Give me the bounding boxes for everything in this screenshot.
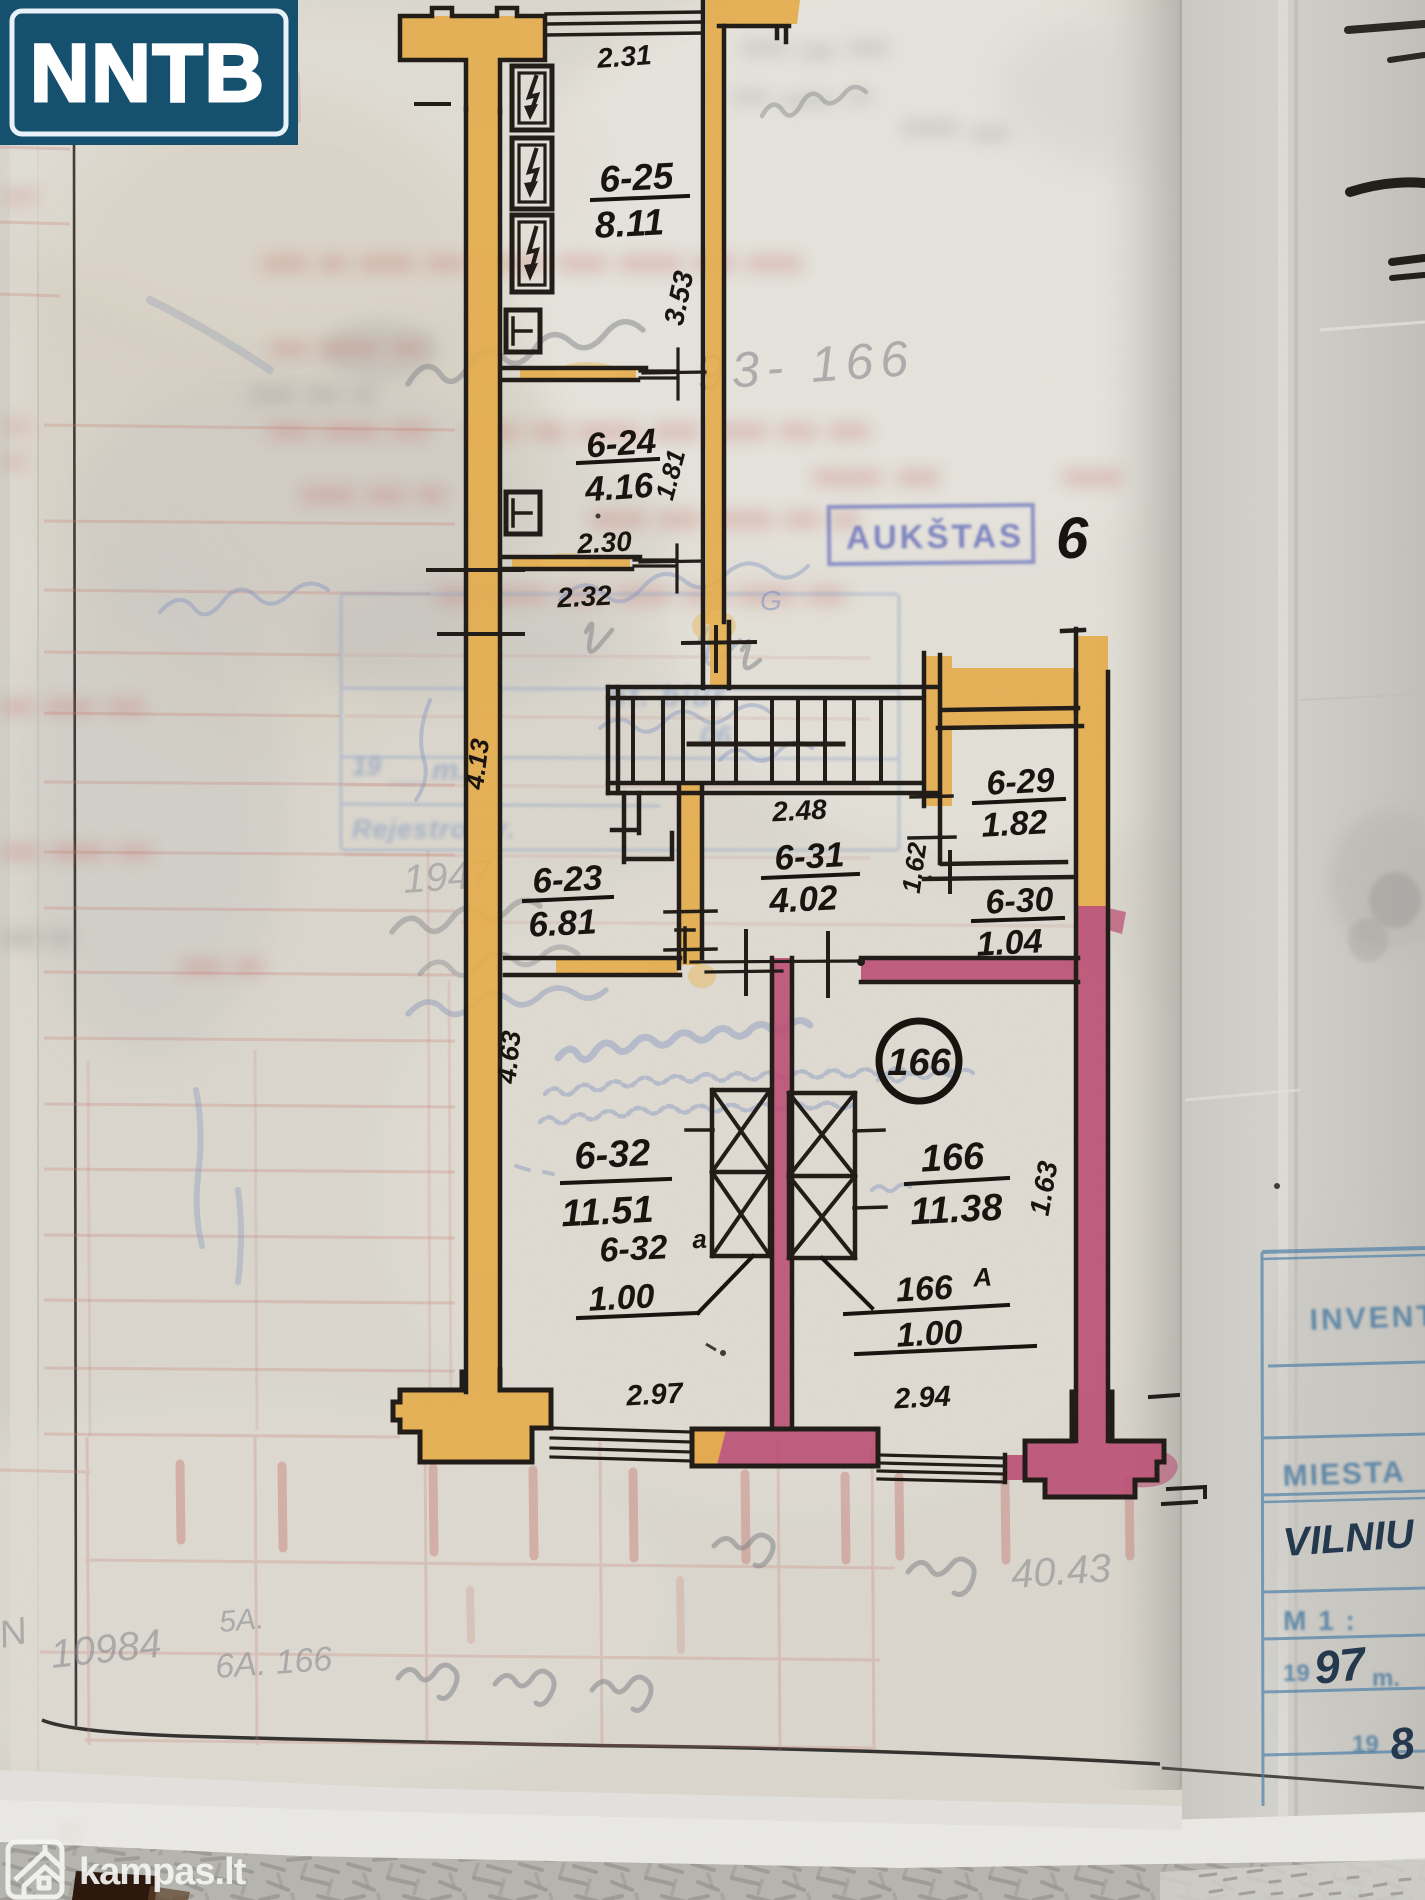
- svg-text:VILNIU: VILNIU: [1282, 1512, 1417, 1565]
- svg-text:M 1 :: M 1 :: [1283, 1605, 1357, 1636]
- svg-text:97: 97: [1312, 1637, 1371, 1694]
- svg-text:NNTB: NNTB: [30, 28, 266, 119]
- svg-text:19: 19: [1352, 1731, 1379, 1758]
- svg-text:INVENT: INVENT: [1309, 1300, 1425, 1337]
- svg-text:19: 19: [1283, 1660, 1310, 1687]
- svg-text:MIESTA: MIESTA: [1282, 1456, 1406, 1493]
- svg-text:kampas.lt: kampas.lt: [79, 1851, 247, 1893]
- svg-text:m.: m.: [1372, 1665, 1400, 1692]
